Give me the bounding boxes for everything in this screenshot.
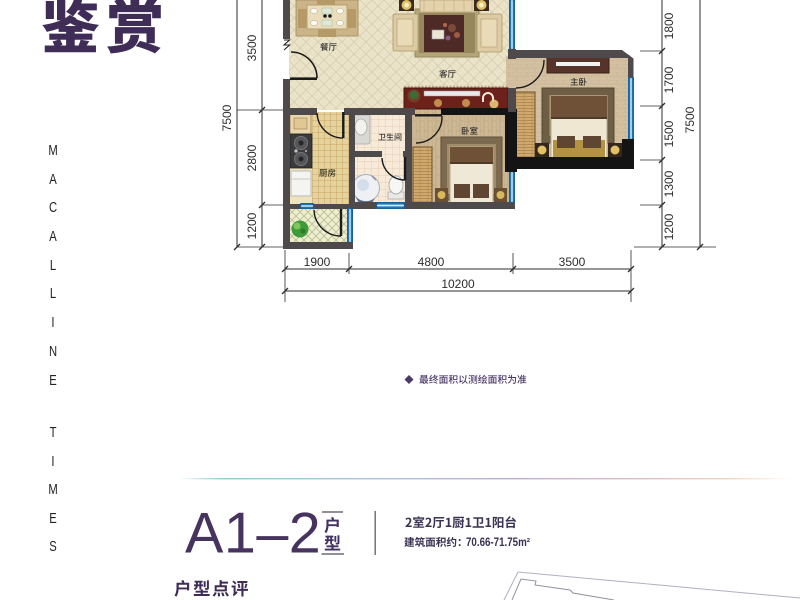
svg-text:I: I [51,452,54,469]
svg-text:1800: 1800 [662,12,676,39]
svg-text:L: L [50,284,56,301]
svg-text:4800: 4800 [418,255,445,269]
svg-text:N: N [49,342,57,359]
svg-text:S: S [49,537,57,554]
svg-text:E: E [49,509,57,526]
svg-text:A: A [49,170,57,187]
svg-text:1200: 1200 [245,212,259,239]
svg-text:7500: 7500 [220,104,234,131]
svg-text:I: I [51,313,54,330]
svg-text:E: E [49,371,57,388]
svg-text:M: M [48,141,57,158]
svg-text:1300: 1300 [662,170,676,197]
svg-text:L: L [50,256,56,273]
svg-text:3500: 3500 [559,255,586,269]
svg-text:2800: 2800 [245,144,259,171]
svg-text:3500: 3500 [245,34,259,61]
svg-text:A1–2: A1–2 [185,502,321,566]
svg-text:A: A [49,227,57,244]
svg-text:C: C [49,198,57,215]
svg-text:1200: 1200 [662,213,676,240]
svg-text:10200: 10200 [441,277,475,291]
svg-text:1700: 1700 [662,66,676,93]
svg-text:M: M [48,480,57,497]
svg-text:1500: 1500 [662,120,676,147]
svg-text:7500: 7500 [683,106,697,133]
svg-text:70.66-71.75m²: 70.66-71.75m² [466,536,530,549]
svg-text:T: T [50,423,57,440]
svg-text:1900: 1900 [304,255,331,269]
